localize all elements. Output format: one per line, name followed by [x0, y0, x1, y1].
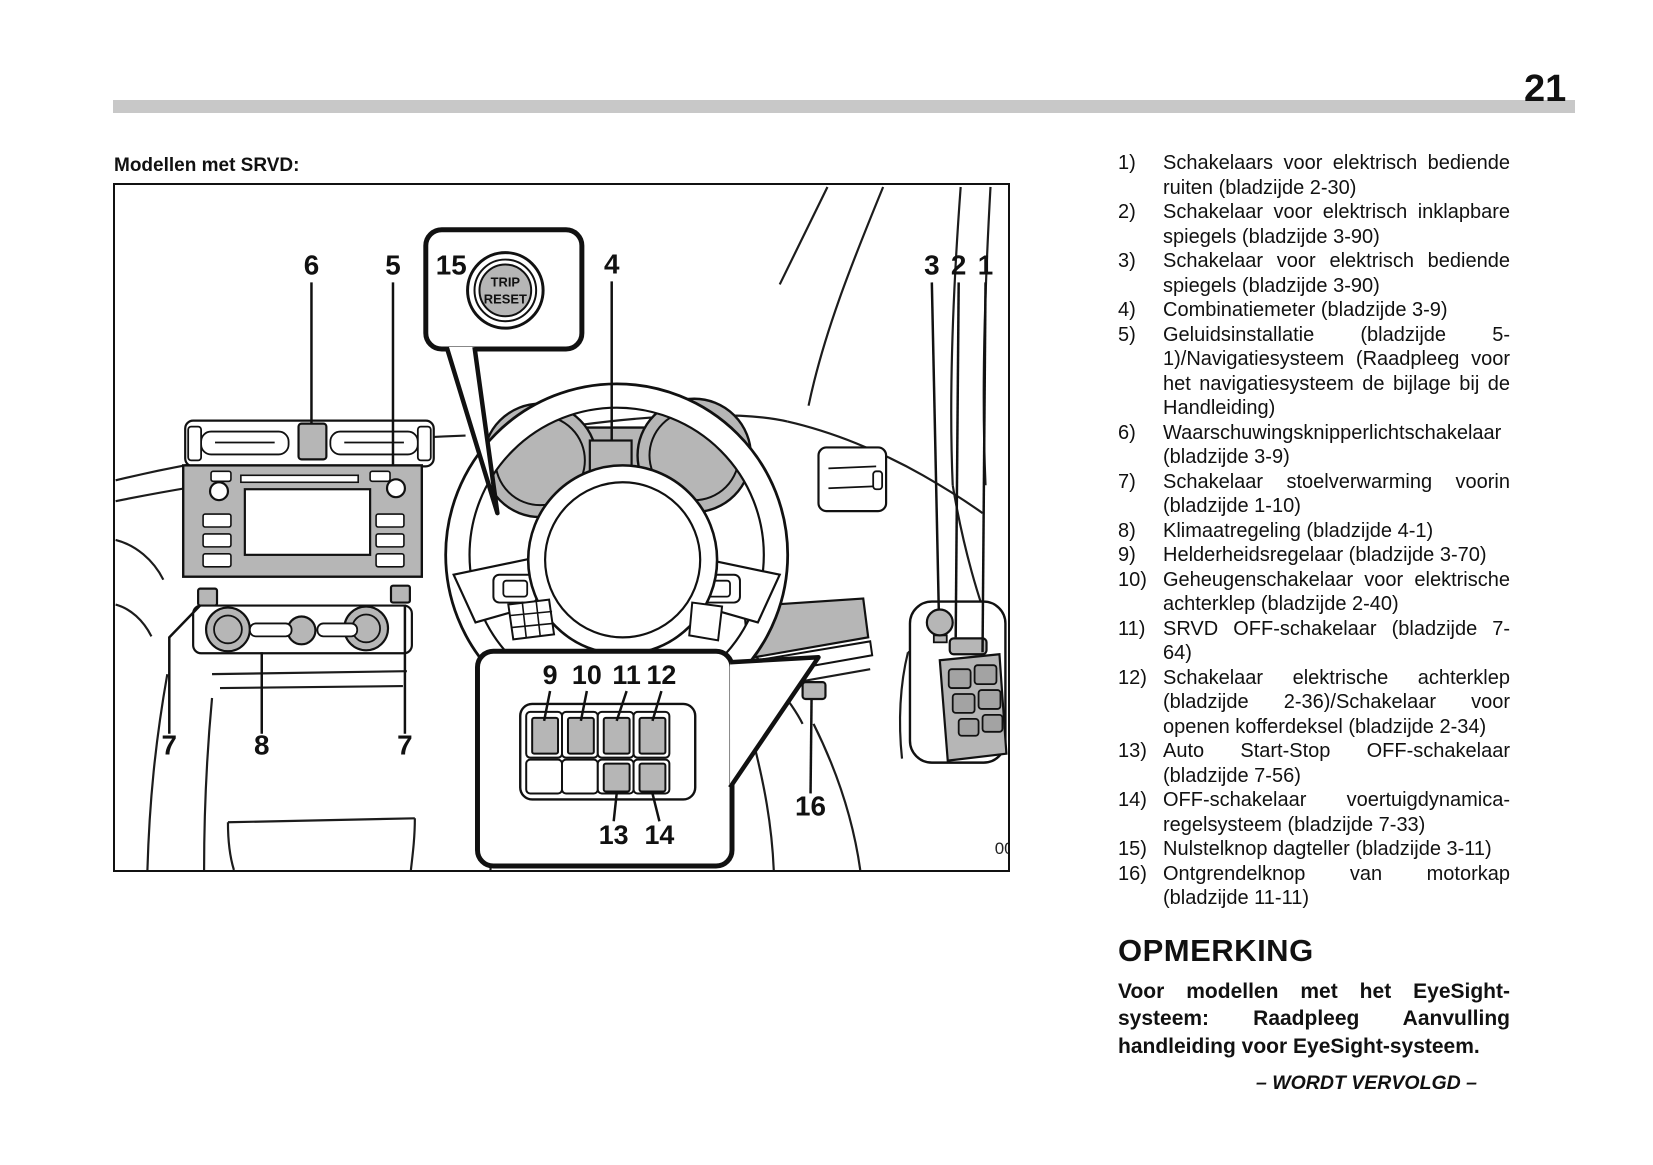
legend-item: 16)Ontgrendelknop van motorkap (bladzijd…: [1118, 862, 1510, 911]
leader-3: [932, 282, 939, 610]
callout-1-label: 1: [978, 249, 993, 280]
legend-item: 7)Schakelaar stoelverwarming voorin (bla…: [1118, 470, 1510, 519]
switch-12: [640, 718, 666, 754]
audio-knob-right: [387, 479, 405, 497]
legend-item-number: 16): [1118, 862, 1163, 911]
dashboard-drawing: TRIP RESET 15: [115, 185, 1008, 870]
legend-item-text: Schakelaar stoelverwarming voorin (bladz…: [1163, 470, 1510, 519]
legend-item-number: 9): [1118, 543, 1163, 568]
legend-item: 9)Helderheidsregelaar (bladzijde 3-70): [1118, 543, 1510, 568]
legend-item-number: 11): [1118, 617, 1163, 666]
leader-2: [956, 282, 959, 637]
legend-item-text: Combinatiemeter (bladzijde 3-9): [1163, 298, 1510, 323]
callout-4-label: 4: [604, 248, 620, 279]
callout-3-label: 3: [924, 249, 939, 280]
hood-release-lever: [803, 682, 826, 699]
manual-page: 21 Modellen met SRVD:: [0, 0, 1653, 1165]
legend-item-text: OFF-schakelaar voertuigdynamica-regelsys…: [1163, 788, 1510, 837]
legend-item-number: 14): [1118, 788, 1163, 837]
callout-11-label: 11: [612, 660, 640, 690]
legend-item-number: 4): [1118, 298, 1163, 323]
legend-item: 12)Schakelaar elektrische achterklep (bl…: [1118, 666, 1510, 740]
switch-13: [604, 764, 630, 792]
cd-slot: [241, 475, 358, 482]
legend-item-number: 15): [1118, 837, 1163, 862]
note-heading: OPMERKING: [1118, 933, 1510, 969]
legend-item-number: 12): [1118, 666, 1163, 740]
legend-item-text: Klimaatregeling (bladzijde 4-1): [1163, 519, 1510, 544]
callout-13-label: 13: [599, 820, 629, 850]
legend-item-number: 7): [1118, 470, 1163, 519]
legend-item-text: Geluidsinstallatie (bladzijde 5-1)/Navig…: [1163, 323, 1510, 421]
legend-item-text: Waarschuwingsknipperlichtschakelaar (bla…: [1163, 421, 1510, 470]
mirror-adjust-knob: [927, 610, 953, 636]
callout-15-label: 15: [436, 249, 467, 280]
legend-item: 15)Nulstelknop dagteller (bladzijde 3-11…: [1118, 837, 1510, 862]
legend-item-text: Auto Start-Stop OFF-schakelaar (bladzijd…: [1163, 739, 1510, 788]
note-body: Voor modellen met het EyeSight-systeem: …: [1118, 978, 1510, 1061]
switch-10: [568, 718, 594, 754]
legend-item: 5)Geluidsinstallatie (bladzijde 5-1)/Nav…: [1118, 323, 1510, 421]
switch-14: [640, 764, 666, 792]
callout-8-label: 8: [254, 730, 269, 761]
legend-item: 2)Schakelaar voor elektrisch inklapbare …: [1118, 200, 1510, 249]
callout-10-label: 10: [572, 660, 602, 690]
switch-9: [532, 718, 558, 754]
seat-heater-switch-right: [391, 586, 410, 603]
mirror-fold-switch: [950, 638, 987, 654]
legend-item: 1)Schakelaars voor elektrisch bediende r…: [1118, 151, 1510, 200]
callout-7-left-label: 7: [162, 730, 177, 761]
legend-item-number: 2): [1118, 200, 1163, 249]
center-stack: [183, 421, 434, 654]
callout-switch-pointer: [730, 657, 818, 787]
leader-16: [811, 700, 812, 793]
legend-item: 4)Combinatiemeter (bladzijde 3-9): [1118, 298, 1510, 323]
legend-item: 10)Geheugenschakelaar voor elektrische a…: [1118, 568, 1510, 617]
callout-2-label: 2: [951, 249, 966, 280]
callout-7-right-label: 7: [397, 730, 412, 761]
legend-item-number: 3): [1118, 249, 1163, 298]
legend-item-text: Ontgrendelknop van motorkap (bladzijde 1…: [1163, 862, 1510, 911]
legend-item: 6)Waarschuwingsknipperlichtschakelaar (b…: [1118, 421, 1510, 470]
audio-knob-left: [210, 482, 228, 500]
door-panel: [744, 447, 1006, 762]
callout-14-label: 14: [645, 820, 675, 850]
legend-item-number: 10): [1118, 568, 1163, 617]
stalk-right: [689, 603, 722, 641]
legend-item-number: 1): [1118, 151, 1163, 200]
callout-6-label: 6: [304, 249, 319, 280]
legend-item-number: 5): [1118, 323, 1163, 421]
legend-column: 1)Schakelaars voor elektrisch bediende r…: [1118, 151, 1510, 1060]
legend-item-text: Schakelaar voor elektrisch inklapbare sp…: [1163, 200, 1510, 249]
legend-item-text: Schakelaar elektrische achterklep (bladz…: [1163, 666, 1510, 740]
callout-16-label: 16: [795, 790, 826, 821]
stalk-left: [508, 600, 554, 640]
legend-item-number: 13): [1118, 739, 1163, 788]
legend-item-text: Schakelaar voor elektrisch bediende spie…: [1163, 249, 1510, 298]
legend-item-text: Nulstelknop dagteller (bladzijde 3-11): [1163, 837, 1510, 862]
legend-item-text: Helderheidsregelaar (bladzijde 3-70): [1163, 543, 1510, 568]
dashboard-figure: TRIP RESET 15: [113, 183, 1010, 872]
legend-item: 8)Klimaatregeling (bladzijde 4-1): [1118, 519, 1510, 544]
seat-heater-switch-left: [198, 589, 217, 606]
audio-screen: [245, 489, 370, 555]
legend-item: 3)Schakelaar voor elektrisch bediende sp…: [1118, 249, 1510, 298]
figure-heading: Modellen met SRVD:: [114, 155, 299, 177]
hazard-switch: [299, 424, 327, 460]
legend-item: 14)OFF-schakelaar voertuigdynamica-regel…: [1118, 788, 1510, 837]
header-rule: [113, 100, 1575, 113]
legend-item: 11)SRVD OFF-schakelaar (bladzijde 7-64): [1118, 617, 1510, 666]
wheel-hub: [528, 465, 717, 654]
legend-item-number: 8): [1118, 519, 1163, 544]
callout-9-label: 9: [543, 660, 558, 690]
legend-item-text: SRVD OFF-schakelaar (bladzijde 7-64): [1163, 617, 1510, 666]
page-number: 21: [1524, 68, 1566, 111]
figure-code: 001502: [995, 839, 1008, 858]
legend-item: 13)Auto Start-Stop OFF-schakelaar (bladz…: [1118, 739, 1510, 788]
legend-item-text: Geheugenschakelaar voor elektrische acht…: [1163, 568, 1510, 617]
switch-11: [604, 718, 630, 754]
trip-label: TRIP: [491, 274, 521, 289]
reset-label: RESET: [484, 291, 527, 306]
leader-1: [983, 282, 986, 652]
callout-5-label: 5: [385, 249, 400, 280]
callout-12-label: 12: [646, 660, 676, 690]
legend-item-text: Schakelaars voor elektrisch bediende rui…: [1163, 151, 1510, 200]
continued-footer: – WORDT VERVOLGD –: [1118, 1072, 1477, 1095]
legend-item-number: 6): [1118, 421, 1163, 470]
